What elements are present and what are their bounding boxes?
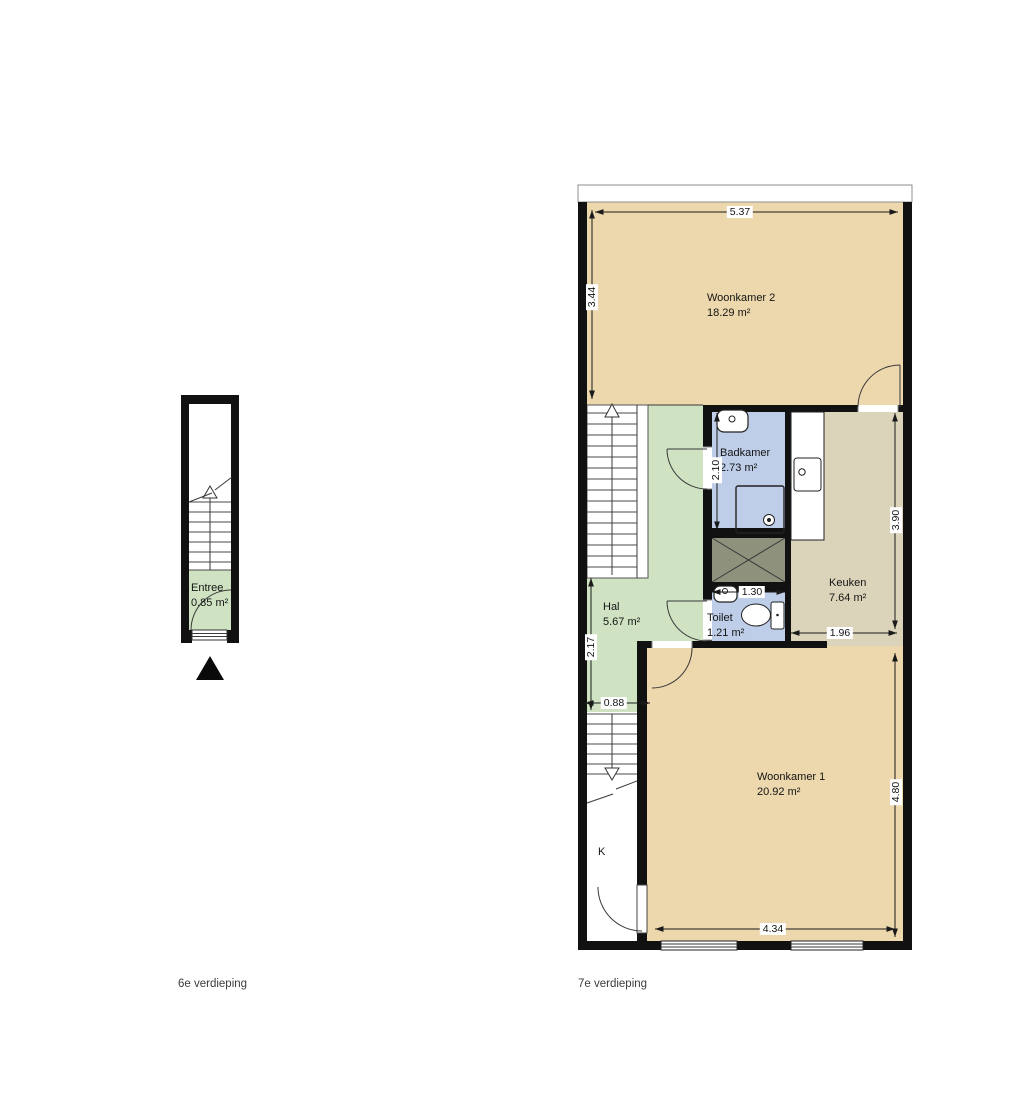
stairs-6e [189, 477, 232, 570]
stairwell-enclosure [587, 405, 648, 578]
dim-kitchen-width: 1.96 [827, 627, 853, 639]
room-label-woonkamer-2: Woonkamer 2 18.29 m² [707, 291, 775, 321]
closet-door-arc [598, 887, 642, 931]
room-area: 18.29 m² [707, 306, 775, 321]
room-area: 20.92 m² [757, 785, 825, 800]
kitchen-sink-icon [794, 458, 821, 491]
room-area: 7.64 m² [829, 591, 866, 606]
room-area: 5.67 m² [603, 615, 640, 630]
closet-label: K [598, 845, 605, 860]
room-label-woonkamer-1: Woonkamer 1 20.92 m² [757, 770, 825, 800]
room-hal-fill-corridor [648, 405, 703, 641]
room-name: Entree [191, 581, 228, 596]
room-area: 2.73 m² [720, 461, 770, 476]
floorplan-drawing [0, 0, 1024, 1114]
dim-left-height: 3.44 [586, 284, 598, 310]
entry-door-opening [192, 630, 227, 640]
dim-living1-width: 4.34 [760, 923, 786, 935]
dim-bathroom-height: 2.10 [710, 457, 722, 483]
floor-label-6e: 6e verdieping [178, 978, 247, 990]
room-name: Hal [603, 600, 640, 615]
room-label-entree: Entree 0.85 m² [191, 581, 228, 611]
dim-top-width: 5.37 [727, 206, 753, 218]
top-window-band [578, 185, 912, 202]
room-name: Toilet [707, 611, 744, 626]
entrance-triangle-icon [196, 656, 224, 680]
dim-toilet-width: 1.30 [739, 586, 765, 598]
dim-living1-height: 4.80 [890, 779, 902, 805]
dim-stair-width: 0.88 [601, 697, 627, 709]
dim-kitchen-height: 3.90 [890, 507, 902, 533]
room-label-hal: Hal 5.67 m² [603, 600, 640, 630]
floor-label-7e: 7e verdieping [578, 978, 647, 990]
room-name: Woonkamer 2 [707, 291, 775, 306]
floorplan-canvas: Entree 0.85 m² 6e verdieping Woonkamer 2… [0, 0, 1024, 1114]
room-label-badkamer: Badkamer 2.73 m² [720, 446, 770, 476]
room-name: Badkamer [720, 446, 770, 461]
room-label-keuken: Keuken 7.64 m² [829, 576, 866, 606]
room-label-toilet: Toilet 1.21 m² [707, 611, 744, 641]
room-area: 1.21 m² [707, 626, 744, 641]
room-name: Keuken [829, 576, 866, 591]
floor-6-plan [181, 395, 239, 680]
room-name: Woonkamer 1 [757, 770, 825, 785]
dim-hall-height: 2.17 [585, 634, 597, 660]
stairs-7e-down [587, 714, 637, 803]
toilet-bowl-icon [742, 604, 771, 626]
room-area: 0.85 m² [191, 596, 228, 611]
